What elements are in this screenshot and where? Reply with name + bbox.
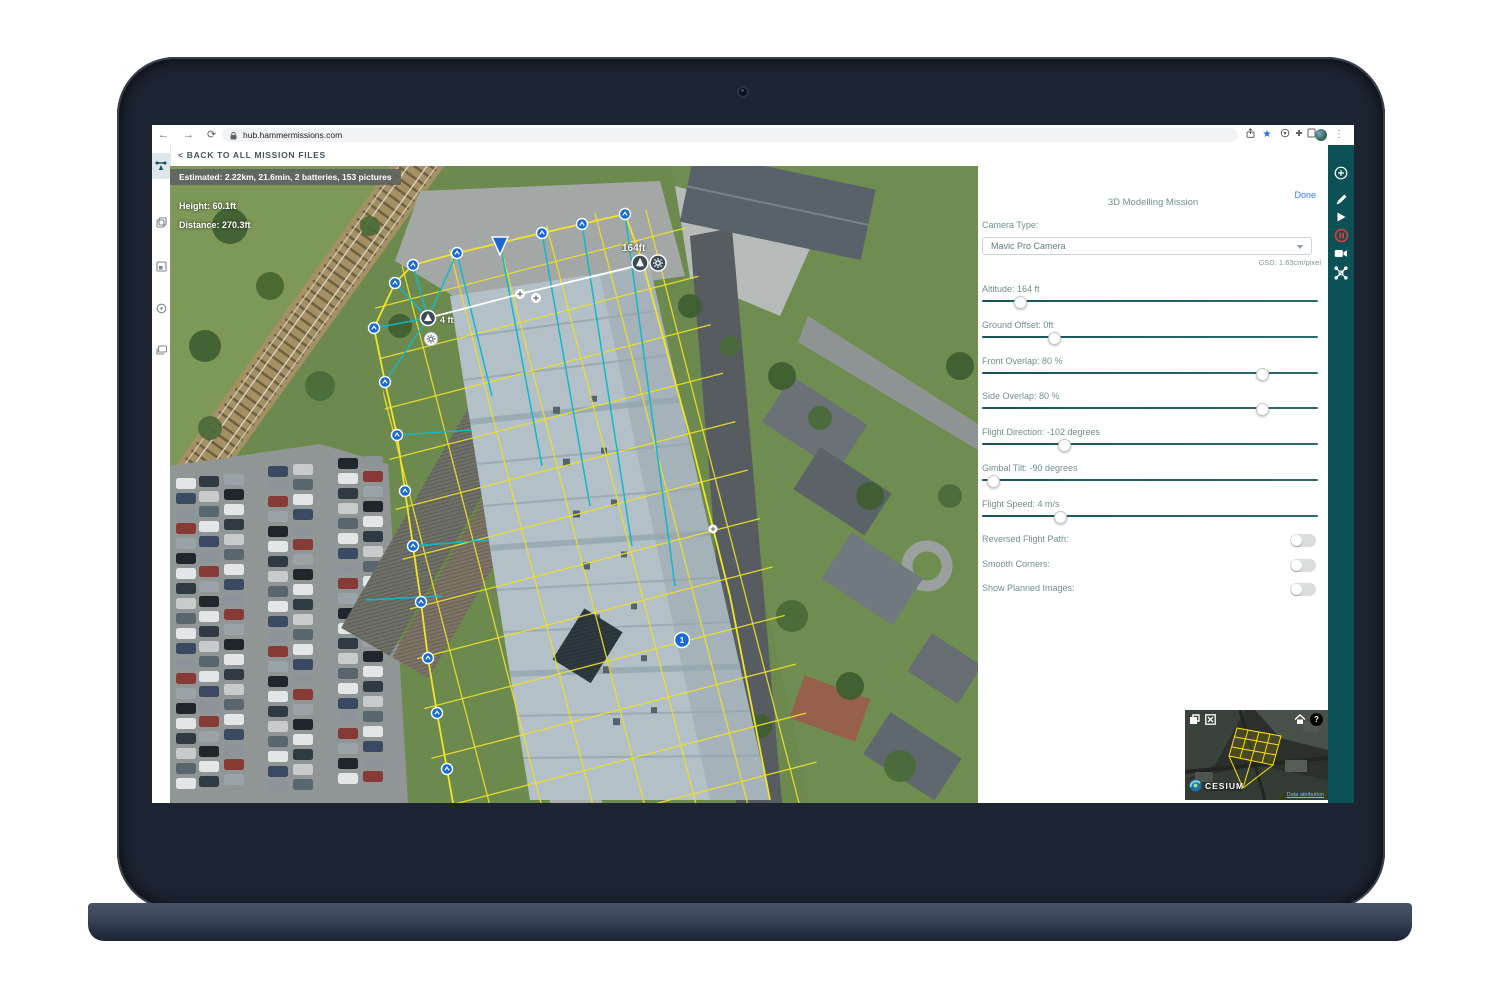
video-camera-icon — [1334, 248, 1348, 259]
reversed-flight-path-toggle[interactable] — [1290, 534, 1316, 547]
toggle-label: Show Planned Images: — [982, 583, 1075, 593]
camera-type-label: Camera Type: — [982, 220, 1038, 230]
back-icon[interactable]: ← — [158, 127, 169, 143]
camera-type-select[interactable]: Mavic Pro Camera — [982, 237, 1312, 255]
drone-disabled-icon — [1334, 266, 1348, 280]
flight-speed-slider[interactable]: Flight Speed: 4 m/s — [982, 499, 1318, 529]
waypoint-marker[interactable] — [369, 323, 380, 334]
minimap-close-icon[interactable] — [1204, 713, 1217, 726]
waypoint-marker[interactable] — [620, 209, 631, 220]
waypoint-marker[interactable] — [408, 541, 419, 552]
menu-icon[interactable]: ⋮ — [1332, 128, 1346, 142]
distance-readout: Distance: 270.3ft — [179, 220, 251, 230]
height-readout: Height: 60.1ft — [179, 201, 236, 211]
chat-tool[interactable] — [152, 337, 170, 363]
waypoint-marker[interactable] — [537, 228, 548, 239]
waypoint-marker[interactable] — [416, 597, 427, 608]
start-altitude-label: 4 ft — [440, 315, 454, 325]
waypoint-marker[interactable] — [408, 260, 419, 271]
start-marker[interactable] — [421, 311, 436, 326]
mission-estimate: Estimated: 2.22km, 21.6min, 2 batteries,… — [170, 169, 401, 185]
avatar[interactable] — [1315, 129, 1327, 141]
slider-thumb — [1048, 332, 1061, 345]
smooth-corners-toggle[interactable] — [1290, 559, 1316, 572]
left-toolbar — [152, 145, 171, 803]
waypoint-marker[interactable] — [392, 430, 403, 441]
slider-thumb — [1256, 368, 1269, 381]
drone-disabled-button[interactable] — [1328, 263, 1354, 283]
minimap-help-button[interactable]: ? — [1310, 713, 1323, 726]
end-settings-button[interactable] — [650, 255, 666, 271]
waypoint-marker[interactable] — [577, 219, 588, 230]
ground-offset-slider[interactable]: Ground Offset: 0ft — [982, 320, 1318, 350]
waypoint-marker[interactable] — [423, 653, 434, 664]
camera-type-value: Mavic Pro Camera — [991, 241, 1066, 251]
cesium-globe-icon — [1189, 779, 1202, 792]
mission-layers-tool[interactable] — [152, 209, 170, 235]
flight-direction-slider[interactable]: Flight Direction: -102 degrees — [982, 427, 1318, 457]
play-icon — [1335, 211, 1347, 223]
play-button[interactable] — [1328, 207, 1354, 227]
compass-button[interactable] — [1328, 801, 1354, 803]
cesium-logo: CESIUM — [1189, 779, 1244, 792]
help-tool[interactable] — [152, 295, 170, 321]
help-circle-icon — [156, 303, 167, 314]
mission-map[interactable]: 4 ft 164ft — [170, 166, 978, 803]
smooth-corners-row: Smooth Corners: — [982, 559, 1316, 573]
svg-text:1: 1 — [680, 636, 685, 645]
waypoint-marker[interactable] — [390, 278, 401, 289]
reload-icon[interactable]: ⟳ — [207, 127, 216, 143]
back-to-mission-files-link[interactable]: < BACK TO ALL MISSION FILES — [178, 150, 326, 160]
cesium-minimap[interactable]: ? CESIUM Data attribution — [1185, 710, 1328, 800]
gsd-readout: GSD: 1.63cm/pixel — [1258, 258, 1321, 267]
plus-circle-icon — [1334, 166, 1348, 180]
toggle-label: Smooth Corners: — [982, 559, 1050, 569]
waypoint-marker[interactable] — [400, 486, 411, 497]
numbered-waypoint[interactable]: 1 — [675, 633, 690, 648]
altitude-slider[interactable]: Altitude: 164 ft — [982, 284, 1318, 314]
chevron-down-icon — [1297, 245, 1303, 249]
laptop-base — [88, 903, 1412, 941]
map-canvas: 4 ft 164ft — [170, 166, 978, 803]
address-bar[interactable]: hub.hammermissions.com — [222, 128, 1238, 142]
minimap-attribution-link[interactable]: Data attribution — [1287, 792, 1324, 798]
lock-icon — [230, 132, 237, 140]
search-circle-icon[interactable] — [1278, 128, 1292, 142]
waypoint-marker[interactable] — [442, 764, 453, 775]
waypoint-marker[interactable] — [452, 248, 463, 259]
end-marker[interactable] — [632, 255, 648, 271]
waypoint-marker[interactable] — [432, 708, 443, 719]
mission-settings-panel: Done 3D Modelling Mission Camera Type: M… — [978, 145, 1328, 803]
forward-icon[interactable]: → — [183, 127, 194, 143]
star-icon[interactable]: ★ — [1260, 128, 1274, 142]
slider-thumb — [1054, 511, 1067, 524]
add-button[interactable] — [1328, 163, 1354, 183]
record-pause-button[interactable] — [1328, 225, 1354, 245]
media-icon — [156, 261, 167, 272]
toggle-label: Reversed Flight Path: — [982, 534, 1069, 544]
slider-thumb — [1256, 403, 1269, 416]
gimbal-tilt-slider[interactable]: Gimbal Tilt: -90 degrees — [982, 463, 1318, 493]
laptop-screen: ← → ⟳ hub.hammermissions.com ★ ⋮ < BACK … — [152, 125, 1354, 803]
show-planned-images-row: Show Planned Images: — [982, 583, 1316, 597]
waypoint-marker[interactable] — [380, 377, 391, 388]
end-altitude-label: 164ft — [622, 243, 646, 254]
side-overlap-slider[interactable]: Side Overlap: 80 % — [982, 391, 1318, 421]
slider-thumb — [987, 475, 1000, 488]
layers-icon — [156, 217, 167, 228]
camera-view-button[interactable] — [1328, 243, 1354, 263]
pen-icon — [1335, 193, 1348, 206]
front-overlap-slider[interactable]: Front Overlap: 80 % — [982, 356, 1318, 386]
webcam — [737, 86, 749, 98]
url-text: hub.hammermissions.com — [243, 128, 342, 142]
chat-icon — [156, 345, 167, 356]
drone-mission-tool[interactable] — [152, 153, 170, 179]
minimap-home-icon[interactable] — [1293, 713, 1306, 726]
panel-title: 3D Modelling Mission — [978, 197, 1328, 208]
media-files-tool[interactable] — [152, 253, 170, 279]
minimap-layers-icon[interactable] — [1188, 713, 1201, 726]
browser-chrome: ← → ⟳ hub.hammermissions.com ★ ⋮ — [152, 125, 1354, 146]
drone-icon — [155, 160, 167, 172]
show-planned-images-toggle[interactable] — [1290, 583, 1316, 596]
pause-record-icon — [1334, 228, 1349, 243]
slider-thumb — [1058, 439, 1071, 452]
reversed-flight-path-row: Reversed Flight Path: — [982, 534, 1316, 548]
right-toolbar — [1328, 145, 1354, 803]
start-settings-button[interactable] — [425, 333, 438, 346]
slider-thumb — [1014, 296, 1027, 309]
draw-button[interactable] — [1328, 189, 1354, 209]
share-icon[interactable] — [1243, 128, 1257, 142]
